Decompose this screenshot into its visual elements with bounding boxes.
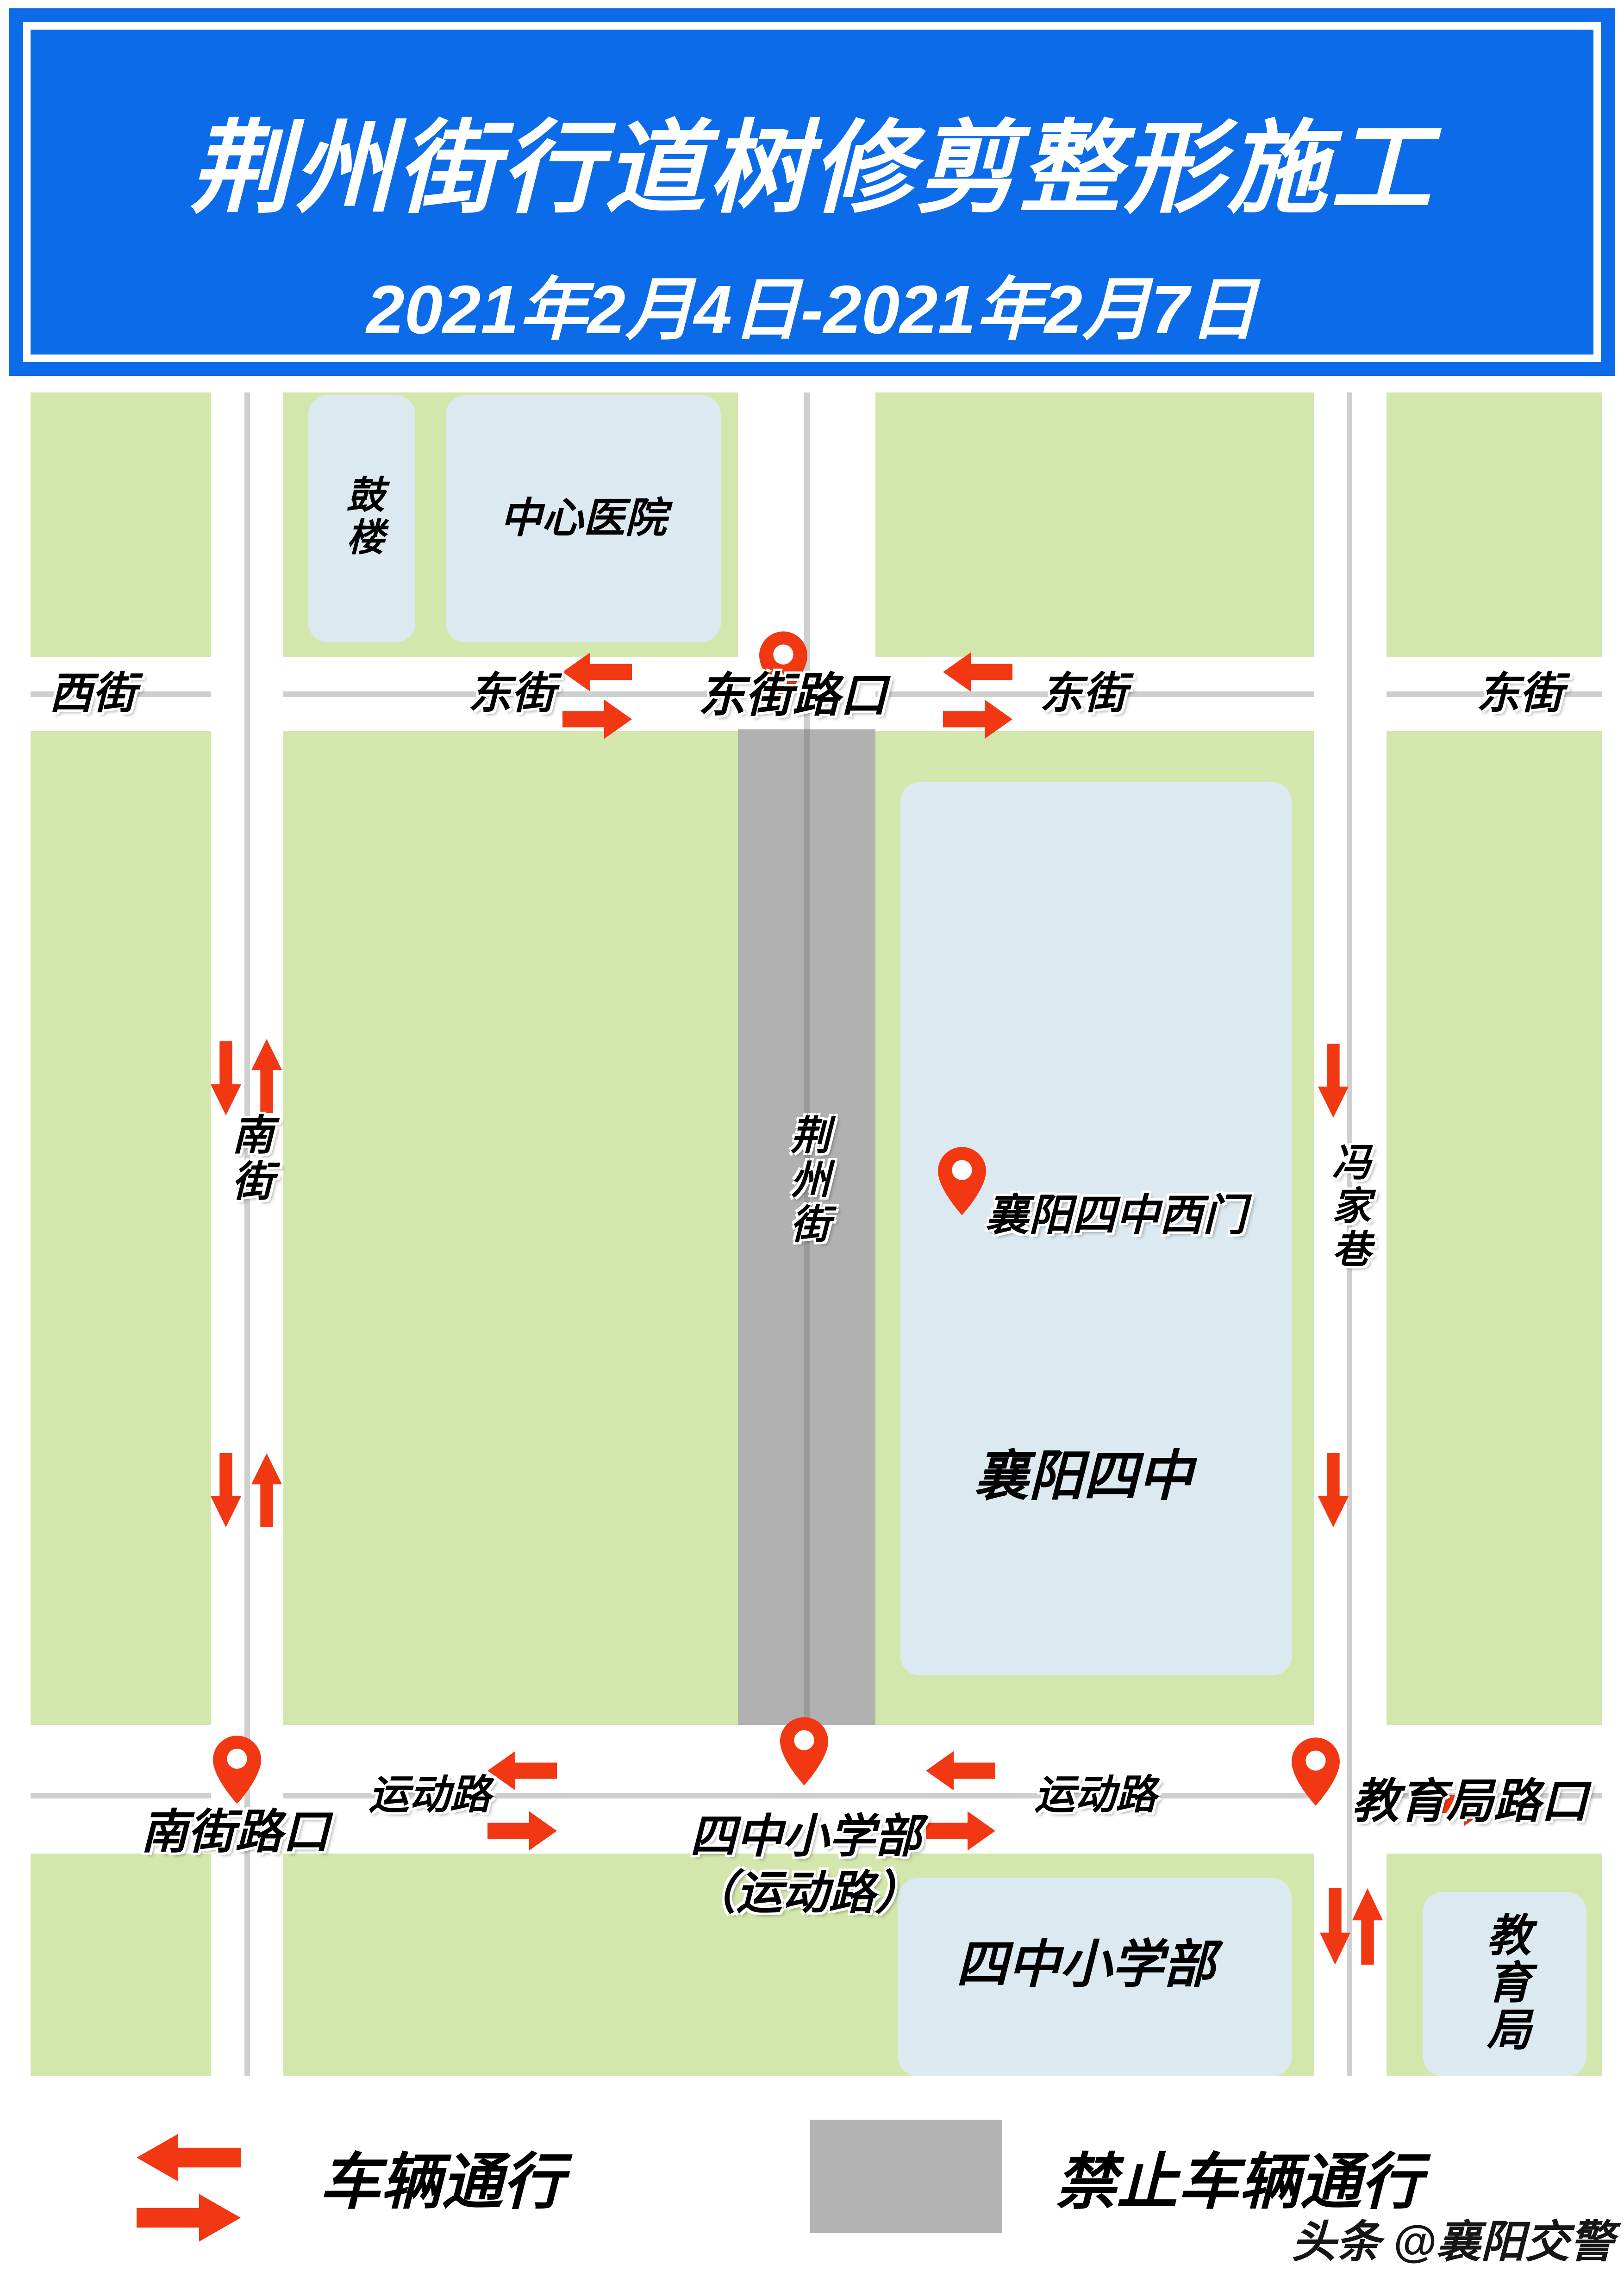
street-label-dongjie-east: 东街 xyxy=(1040,672,1127,715)
legend-label-traffic-allowed: 车辆通行 xyxy=(319,2152,564,2213)
building-label-central-hospital: 中心医院 xyxy=(500,498,667,539)
title-banner: 荆州街行道树修剪整形施工 2021年2月4日-2021年2月7日 xyxy=(9,8,1615,376)
arrow-south-icon xyxy=(209,1041,243,1115)
arrow-north-icon xyxy=(250,1453,283,1527)
city-block xyxy=(31,1854,211,2076)
building-label-primary-school: 四中小学部 xyxy=(956,1939,1215,1991)
building-label-xiangyang-no4-school: 襄阳四中 xyxy=(974,1449,1193,1504)
legend-arrow-west-icon xyxy=(137,2132,241,2184)
arrow-east-icon xyxy=(926,1810,995,1852)
pin-label-primary-school-line2: （运动路） xyxy=(690,1870,921,1916)
location-pin-icon xyxy=(780,1717,828,1786)
street-label-nanjie: 南街 xyxy=(228,1113,269,1206)
arrow-west-icon xyxy=(487,1749,557,1792)
pin-label-nanjie-crossing: 南街路口 xyxy=(141,1808,330,1855)
poster-date-range: 2021年2月4日-2021年2月7日 xyxy=(9,276,1615,344)
pin-label-school-west-gate: 襄阳四中西门 xyxy=(985,1194,1246,1237)
yundonglu-centerline xyxy=(31,1793,211,1798)
city-block xyxy=(1387,731,1602,1725)
legend-closed-road-swatch xyxy=(810,2120,1002,2233)
arrow-south-icon xyxy=(1317,1044,1350,1118)
street-label-yundonglu-east: 运动路 xyxy=(1034,1774,1156,1815)
arrow-south-icon xyxy=(209,1453,243,1527)
location-pin-icon xyxy=(213,1736,261,1804)
watermark-toutiao-xiangyang-police: 头条 @襄阳交警 xyxy=(1292,2220,1597,2265)
legend-arrow-east-icon xyxy=(137,2192,241,2244)
street-label-jingzhoujie: 荆州街 xyxy=(787,1114,826,1248)
city-block xyxy=(1387,392,1602,657)
location-pin-icon xyxy=(938,1147,986,1215)
city-block xyxy=(31,731,211,1725)
city-block xyxy=(283,731,738,1725)
arrow-west-icon xyxy=(926,1749,995,1792)
location-pin-icon xyxy=(1292,1737,1340,1806)
building-label-gulou: 鼓楼 xyxy=(343,475,381,560)
street-label-dongjie-west: 东街 xyxy=(468,672,555,715)
pin-label-primary-school-line1: 四中小学部 xyxy=(690,1813,921,1860)
street-label-dongjie-far: 东街 xyxy=(1476,672,1563,715)
arrow-north-icon xyxy=(250,1039,283,1113)
arrow-east-icon xyxy=(487,1810,557,1852)
city-block xyxy=(875,392,1314,657)
pin-label-dongjie-crossing: 东街路口 xyxy=(698,672,887,719)
arrow-north-icon xyxy=(1351,1888,1384,1965)
street-label-yundonglu-west: 运动路 xyxy=(369,1774,491,1815)
arrow-south-icon xyxy=(1317,1453,1350,1527)
city-block xyxy=(31,392,211,657)
building-label-education-bureau: 教育局 xyxy=(1482,1912,1527,2053)
pin-label-edu-crossing: 教育局路口 xyxy=(1352,1778,1588,1825)
street-label-xijie: 西街 xyxy=(49,672,136,715)
poster-title: 荆州街行道树修剪整形施工 xyxy=(9,118,1615,219)
legend-label-traffic-forbidden: 禁止车辆通行 xyxy=(1056,2152,1422,2213)
street-label-fengjiaxiang: 冯家巷 xyxy=(1329,1142,1368,1272)
